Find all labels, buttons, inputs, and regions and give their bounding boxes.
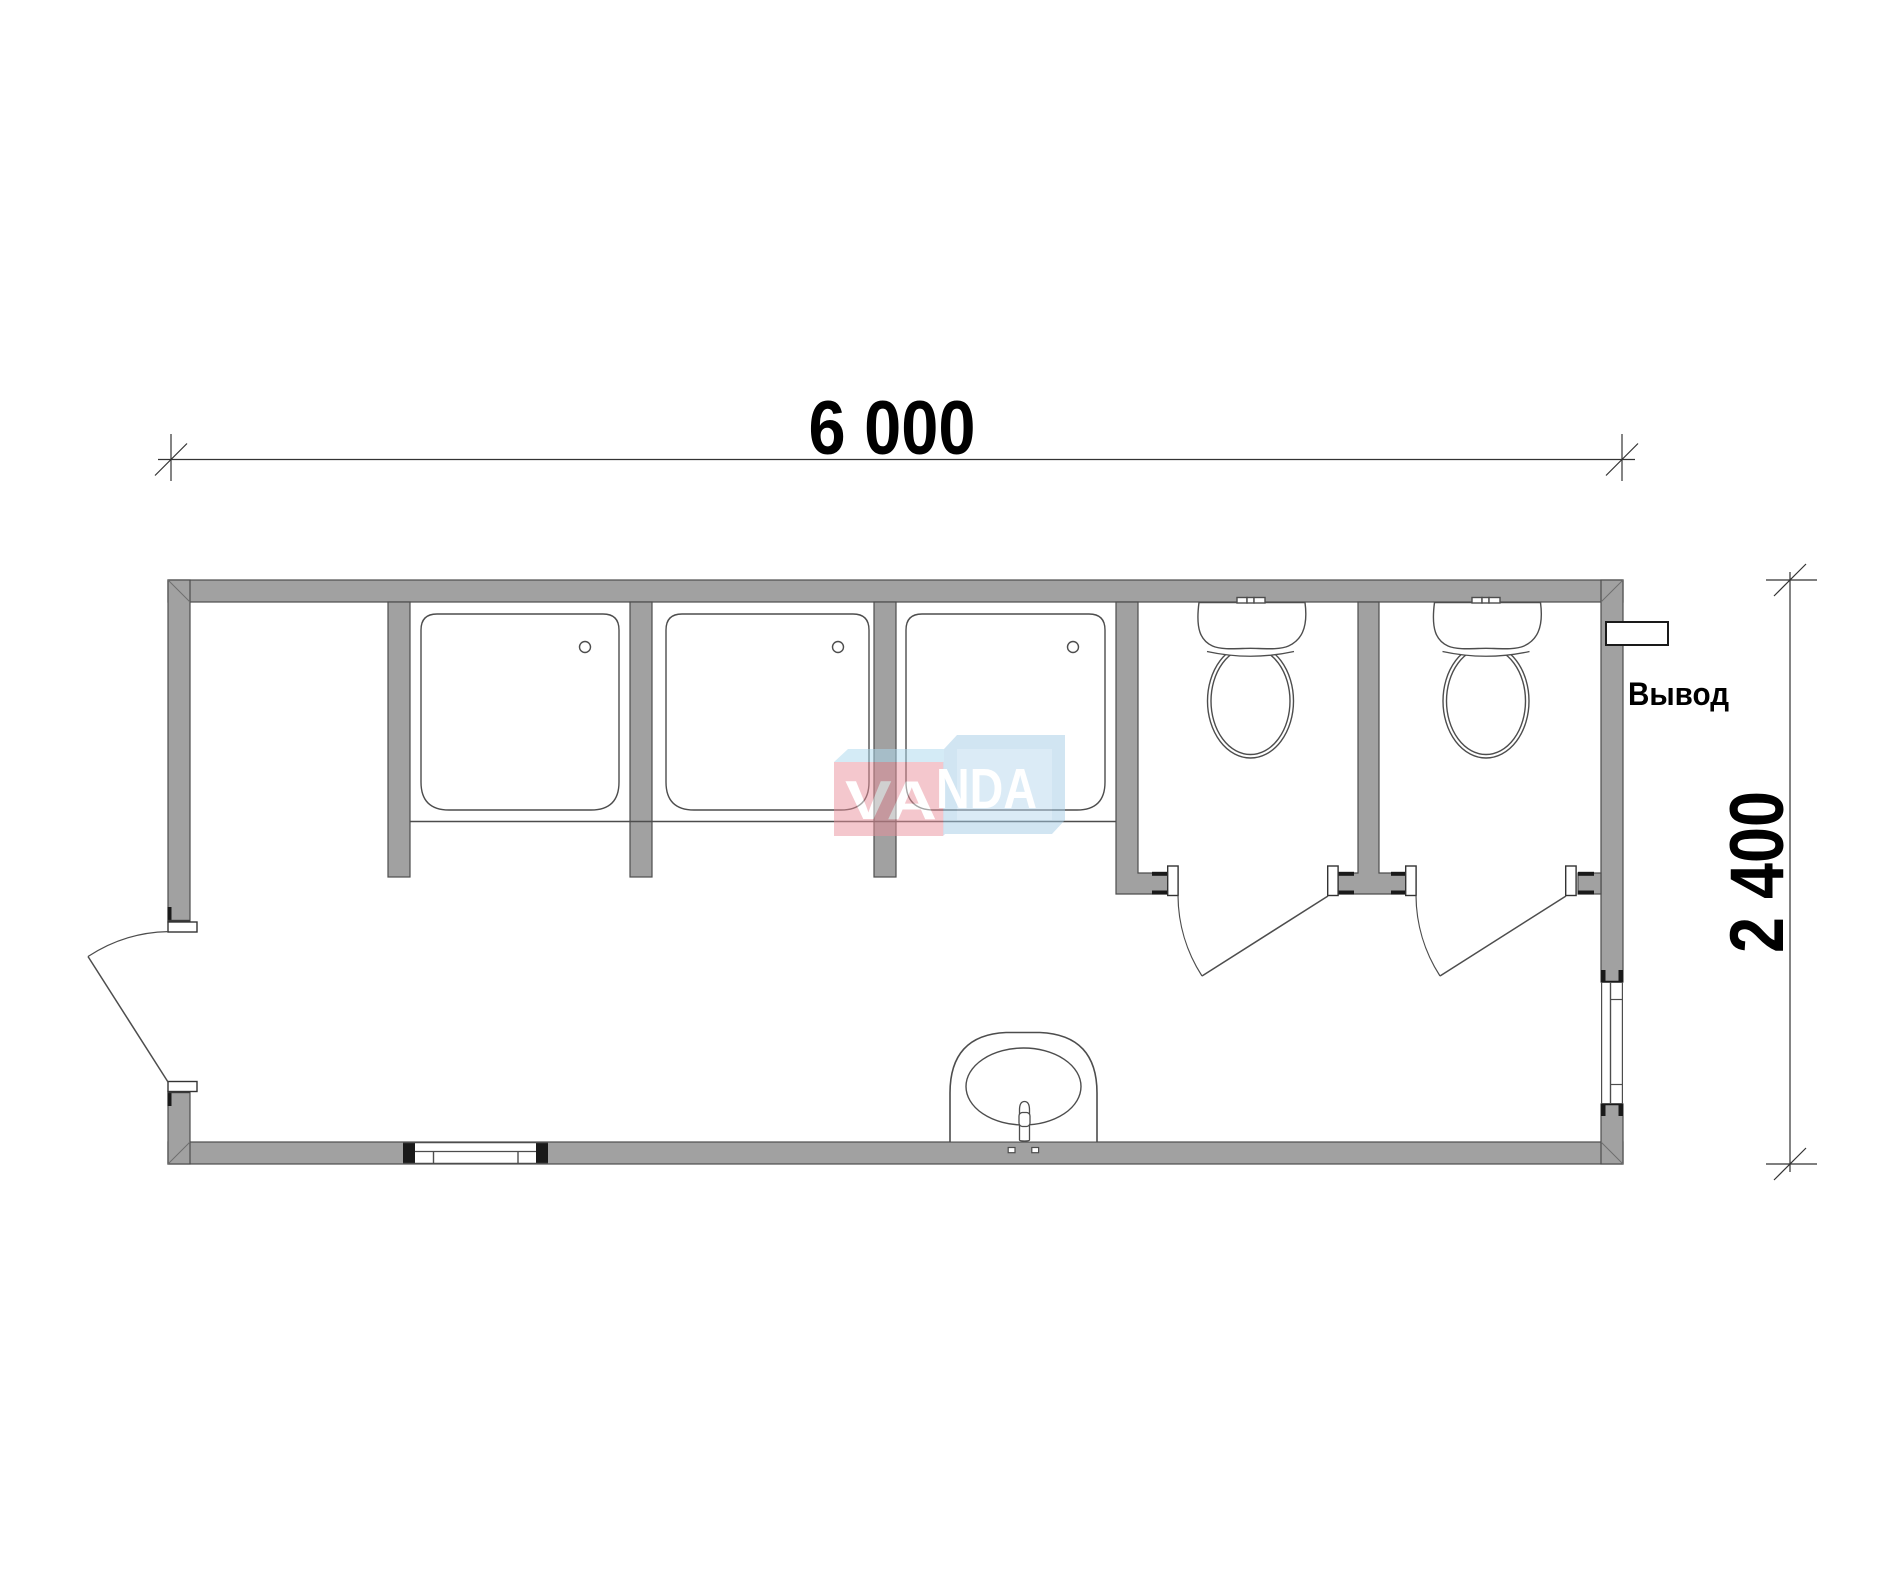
svg-text:VA: VA <box>845 769 937 831</box>
svg-text:Вывод: Вывод <box>1628 676 1729 712</box>
svg-text:NDA: NDA <box>936 757 1037 821</box>
svg-text:2 400: 2 400 <box>1715 791 1800 953</box>
svg-text:6 000: 6 000 <box>809 386 976 471</box>
